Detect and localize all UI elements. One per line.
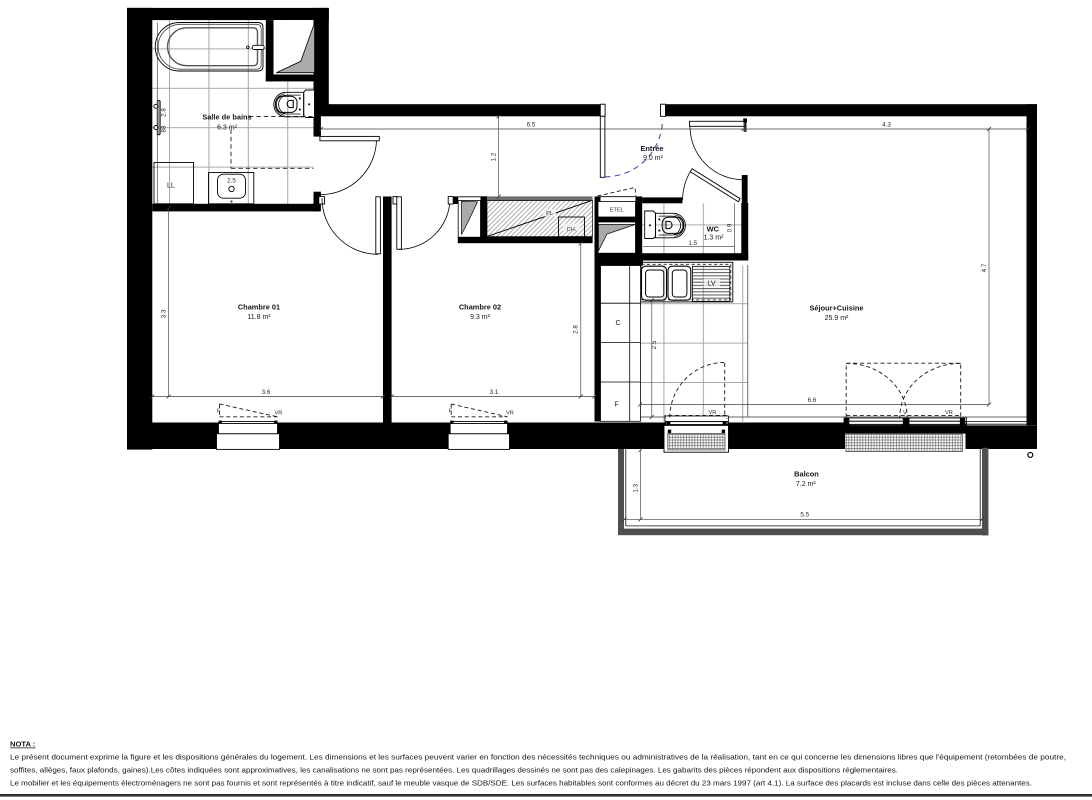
svg-text:3.1: 3.1	[490, 389, 499, 396]
svg-text:VR: VR	[945, 410, 953, 416]
svg-text:0.9: 0.9	[727, 223, 734, 232]
svg-text:1.5: 1.5	[688, 240, 697, 247]
svg-text:6.6: 6.6	[808, 397, 817, 404]
svg-text:Chambre 02: Chambre 02	[459, 303, 501, 312]
svg-text:88: 88	[161, 125, 168, 133]
svg-text:2.8: 2.8	[573, 325, 580, 334]
svg-text:25.9 m²: 25.9 m²	[825, 315, 849, 322]
svg-text:LV: LV	[707, 281, 715, 288]
svg-text:VR: VR	[275, 410, 283, 416]
svg-text:Salle de bains: Salle de bains	[202, 113, 251, 122]
svg-text:VR: VR	[709, 410, 717, 416]
svg-text:NOTA :: NOTA :	[10, 740, 35, 749]
svg-text:1.3: 1.3	[632, 483, 639, 492]
svg-text:soffites, allèges, faux plafon: soffites, allèges, faux plafonds, gaines…	[10, 766, 898, 775]
svg-text:CH.: CH.	[567, 227, 577, 233]
svg-text:PL: PL	[546, 211, 553, 217]
svg-text:1.2: 1.2	[491, 152, 498, 161]
svg-text:ETEL: ETEL	[610, 207, 624, 213]
svg-text:VR: VR	[506, 410, 514, 416]
svg-text:1.3 m²: 1.3 m²	[704, 235, 725, 242]
svg-text:2.8: 2.8	[160, 108, 167, 117]
svg-text:Le présent document exprime la: Le présent document exprime la figure et…	[10, 753, 1066, 762]
svg-text:LL: LL	[167, 183, 175, 190]
svg-text:6.5: 6.5	[527, 122, 536, 129]
svg-text:3.3: 3.3	[160, 309, 167, 318]
svg-text:3.6: 3.6	[262, 389, 271, 396]
svg-text:2.5: 2.5	[651, 340, 658, 349]
svg-text:4.7: 4.7	[981, 263, 988, 272]
svg-text:2.5: 2.5	[227, 177, 236, 184]
svg-text:7.2 m²: 7.2 m²	[796, 481, 817, 488]
svg-text:Balcon: Balcon	[794, 469, 819, 478]
svg-text:9.3 m²: 9.3 m²	[470, 314, 491, 321]
svg-text:9.0 m²: 9.0 m²	[643, 155, 664, 162]
svg-text:6.3 m²: 6.3 m²	[217, 125, 238, 132]
svg-text:Entrée: Entrée	[640, 144, 663, 153]
svg-text:Chambre 01: Chambre 01	[238, 303, 280, 312]
svg-text:F: F	[217, 409, 221, 415]
svg-text:Le mobilier et les équipements: Le mobilier et les équipements électromé…	[10, 779, 1032, 788]
svg-text:C: C	[615, 320, 620, 327]
svg-text:V: V	[903, 411, 907, 417]
svg-text:5.5: 5.5	[800, 511, 809, 518]
svg-text:WC: WC	[707, 224, 720, 233]
svg-text:F: F	[449, 409, 453, 415]
svg-text:F: F	[614, 402, 618, 409]
svg-text:4.3: 4.3	[882, 122, 891, 129]
svg-text:Séjour+Cuisine: Séjour+Cuisine	[809, 304, 863, 313]
svg-text:11.8 m²: 11.8 m²	[247, 314, 271, 321]
